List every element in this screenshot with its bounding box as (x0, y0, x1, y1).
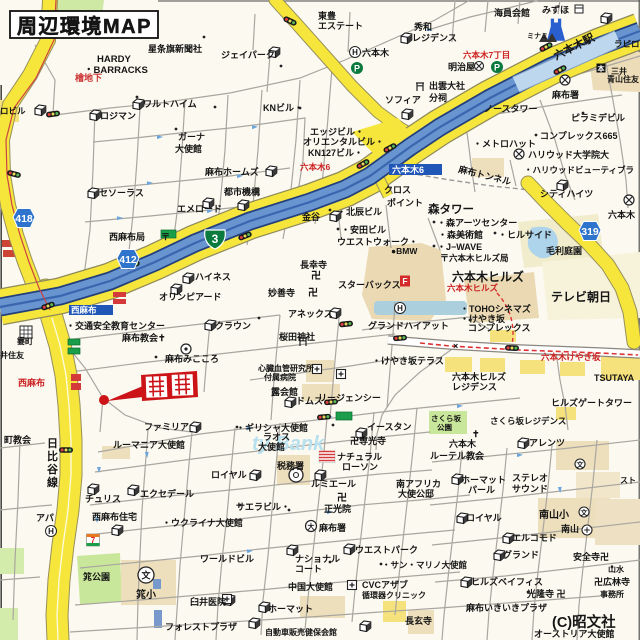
svg-text:麻布みこころ: 麻布みこころ (164, 353, 219, 364)
svg-text:ポイント: ポイント (387, 197, 423, 208)
svg-text:ジェイパーク: ジェイパーク (221, 49, 275, 60)
svg-text:・交通安全教育センター: ・交通安全教育センター (66, 320, 165, 331)
svg-text:ステレオ: ステレオ (512, 473, 548, 483)
svg-text:ピラミデビル: ピラミデビル (571, 112, 625, 123)
svg-text:循環器クリニック: 循環器クリニック (361, 590, 426, 600)
svg-text:KN127ビル・: KN127ビル・ (308, 147, 363, 158)
svg-text:ミナミ: ミナミ (527, 32, 548, 40)
svg-text:西麻布: 西麻布 (71, 305, 97, 315)
svg-text:税務署: 税務署 (277, 460, 304, 471)
svg-text:コート: コート (295, 564, 322, 574)
svg-text:チュリス: チュリス (85, 494, 121, 504)
svg-text:ホーマット: ホーマット (268, 604, 313, 614)
svg-text:セソーラス: セソーラス (99, 188, 144, 198)
svg-text:文: 文 (581, 508, 589, 517)
svg-text:西麻布: 西麻布 (18, 377, 45, 388)
svg-text:✝: ✝ (472, 429, 480, 439)
svg-text:卍: 卍 (311, 270, 321, 282)
svg-text:シティハイツ: シティハイツ (540, 189, 593, 199)
svg-text:〒: 〒 (440, 253, 449, 263)
svg-text:南山小: 南山小 (539, 508, 569, 521)
svg-text:H: H (397, 304, 403, 313)
svg-text:エメロード: エメロード (177, 204, 222, 214)
svg-text:卍: 卍 (308, 287, 318, 299)
svg-text:ヒルズベイフィス: ヒルズベイフィス (471, 576, 543, 587)
svg-text:六本木ヒルズ: 六本木ヒルズ (447, 283, 499, 293)
svg-text:ハイネス: ハイネス (195, 272, 231, 282)
svg-text:ルーテル教会: ルーテル教会 (430, 450, 485, 461)
svg-text:オリンピアード: オリンピアード (159, 291, 221, 302)
svg-text:グランドハイアット: グランドハイアット (368, 320, 449, 331)
svg-text:みずほ: みずほ (542, 4, 569, 15)
svg-text:7: 7 (91, 536, 96, 545)
svg-text:明治屋: 明治屋 (448, 61, 475, 72)
svg-text:筄小: 筄小 (136, 588, 156, 601)
svg-text:イースタン: イースタン (367, 421, 412, 432)
svg-text:●BMW: ●BMW (391, 246, 418, 256)
svg-text:エクセデール: エクセデール (140, 488, 194, 499)
svg-text:線: 線 (47, 475, 58, 489)
svg-text:・サン・マリノ大使館: ・サン・マリノ大使館 (382, 560, 468, 570)
svg-text:文: 文 (577, 460, 585, 469)
svg-text:グランド: グランド (503, 549, 539, 560)
svg-text:六本木: 六本木 (449, 438, 477, 449)
svg-text:・けやき坂テラス: ・けやき坂テラス (372, 355, 444, 366)
svg-text:412: 412 (119, 254, 137, 266)
svg-text:六本木: 六本木 (608, 209, 636, 220)
svg-text:安全寺卍: 安全寺卍 (573, 551, 609, 562)
svg-text:ノースタワー: ノースタワー (484, 103, 538, 114)
svg-text:西麻布局: 西麻布局 (109, 231, 145, 242)
svg-text:ソフィア: ソフィア (385, 95, 421, 105)
svg-text:H: H (352, 48, 358, 57)
svg-text:六本木ヒルズ: 六本木ヒルズ (452, 371, 506, 382)
svg-text:六本木: 六本木 (362, 47, 390, 58)
svg-text:大使館: 大使館 (258, 441, 285, 452)
svg-text:麻布署: 麻布署 (551, 89, 579, 100)
svg-text:付属病院: 付属病院 (264, 372, 296, 382)
svg-text:卍: 卍 (337, 492, 347, 504)
svg-text:・TOHOシネマズ: ・TOHOシネマズ (460, 303, 531, 314)
svg-text:谷: 谷 (47, 462, 59, 476)
svg-text:日: 日 (47, 437, 58, 450)
svg-text:・ヒルサイド: ・ヒルサイド (498, 230, 552, 240)
svg-text:ラピロ: ラピロ (614, 39, 640, 49)
svg-text:町教会: 町教会 (4, 434, 32, 445)
svg-text:中国大使館: 中国大使館 (288, 581, 333, 592)
svg-text:海員会館: 海員会館 (494, 7, 530, 18)
svg-text:南アフリカ: 南アフリカ (396, 478, 441, 489)
svg-text:〒: 〒 (161, 232, 170, 242)
svg-text:リージェンシー: リージェンシー (318, 393, 381, 403)
svg-text:418: 418 (15, 213, 33, 225)
svg-text:HARDY: HARDY (97, 54, 131, 65)
svg-text:ドムス: ドムス (296, 396, 323, 406)
svg-text:・北辰ビル: ・北辰ビル (337, 206, 382, 217)
svg-text:テレビ朝日: テレビ朝日 (551, 289, 611, 304)
svg-text:×: × (453, 341, 458, 351)
svg-text:スト: スト (620, 476, 636, 485)
svg-text:エルコモド: エルコモド (512, 533, 557, 543)
svg-text:秀和: 秀和 (413, 21, 432, 32)
svg-text:フォレストプラザ: フォレストプラザ (165, 621, 237, 632)
svg-text:周辺環境MAP: 周辺環境MAP (17, 14, 152, 38)
svg-text:さくら坂: さくら坂 (431, 413, 461, 423)
svg-text:六本木ヒルズ: 六本木ヒルズ (452, 269, 524, 284)
svg-text:六本木6: 六本木6 (392, 164, 424, 175)
svg-text:・メトロハット: ・メトロハット (473, 139, 536, 149)
svg-text:金谷: 金谷 (301, 211, 321, 222)
svg-text:麻布署: 麻布署 (318, 522, 346, 533)
svg-text:麻布教会✝: 麻布教会✝ (121, 332, 166, 343)
svg-text:六本木ヒルズ局: 六本木ヒルズ局 (449, 253, 509, 263)
svg-text:長玄寺: 長玄寺 (405, 615, 432, 626)
svg-text:サウンド: サウンド (512, 484, 548, 494)
svg-text:ウエストパーク: ウエストパーク (355, 544, 418, 555)
svg-text:ルミエール: ルミエール (311, 479, 356, 489)
svg-text:アパ: アパ (36, 512, 54, 523)
svg-text:ロイヤル: ロイヤル (211, 470, 247, 480)
svg-text:パール: パール (468, 484, 495, 495)
svg-text:エッジビル・: エッジビル・ (310, 126, 364, 137)
svg-text:・安田ビル: ・安田ビル (341, 224, 386, 235)
svg-text:麻布いきいきプラザ: 麻布いきいきプラザ (465, 602, 547, 613)
svg-text:アレンツ: アレンツ (529, 438, 565, 448)
svg-text:クラウン: クラウン (215, 321, 251, 331)
svg-text:KNビル・: KNビル・ (263, 102, 303, 113)
svg-text:ヒルズゲートタワー: ヒルズゲートタワー (551, 397, 632, 408)
svg-text:毛利庭園: 毛利庭園 (546, 245, 582, 256)
svg-text:F: F (402, 276, 407, 286)
svg-text:P: P (354, 63, 360, 73)
svg-text:・森アーツセンター: ・森アーツセンター (437, 217, 517, 228)
svg-text:露会館: 露会館 (271, 386, 298, 397)
svg-text:分祠: 分祠 (429, 92, 447, 103)
svg-text:ガーナ: ガーナ (178, 131, 205, 142)
svg-text:ローソン: ローソン (342, 462, 378, 472)
svg-text:さくら坂レジデンス: さくら坂レジデンス (490, 416, 566, 426)
svg-text:筄公園: 筄公園 (83, 571, 110, 582)
svg-text:桜田神社: 桜田神社 (279, 331, 315, 342)
svg-text:CVCアザブ: CVCアザブ (362, 579, 408, 590)
svg-text:東豊: 東豊 (318, 10, 336, 21)
svg-text:ナチュラル: ナチュラル (337, 452, 382, 462)
svg-text:ワルトハイム: ワルトハイム (143, 99, 197, 109)
svg-text:ファミリア: ファミリア (144, 422, 189, 432)
svg-text:都市機構: 都市機構 (223, 186, 260, 197)
svg-text:ホーマット: ホーマット (461, 475, 506, 485)
svg-text:卍専光寺: 卍専光寺 (350, 435, 386, 446)
svg-text:六本木けやき坂: 六本木けやき坂 (541, 352, 601, 362)
svg-text:森タワー: 森タワー (428, 202, 474, 216)
svg-text:オリエンタルビル・: オリエンタルビル・ (303, 136, 384, 147)
svg-text:事務所: 事務所 (600, 589, 624, 599)
svg-text:南山: 南山 (561, 523, 579, 534)
svg-text:大使館: 大使館 (175, 143, 202, 154)
svg-text:自動車販売健保会館: 自動車販売健保会館 (265, 627, 337, 637)
svg-text:光隆寺 卍: 光隆寺 卍 (526, 588, 566, 599)
svg-text:心臓血管研究所: 心臓血管研究所 (258, 363, 314, 373)
svg-text:出雲大社: 出雲大社 (429, 80, 465, 91)
svg-text:319: 319 (581, 226, 599, 238)
svg-text:星条旗新聞社: 星条旗新聞社 (148, 43, 202, 54)
svg-text:H: H (48, 527, 54, 536)
svg-text:・J−WAVE: ・J−WAVE (437, 242, 482, 252)
svg-text:ワールドビル: ワールドビル (200, 553, 254, 564)
svg-text:ロジマン: ロジマン (100, 111, 136, 121)
svg-text:青山住友: 青山住友 (607, 74, 639, 84)
svg-text:3: 3 (212, 232, 219, 246)
svg-text:卍広林寺: 卍広林寺 (594, 576, 630, 587)
svg-text:臼井医院: 臼井医院 (190, 596, 226, 607)
svg-text:本: 本 (597, 64, 605, 73)
svg-text:レジデンス: レジデンス (452, 381, 497, 392)
svg-text:西麻布住宅: 西麻布住宅 (92, 511, 137, 522)
svg-text:TSUTAYA: TSUTAYA (594, 373, 635, 383)
svg-text:六本木7丁目: 六本木7丁目 (463, 50, 510, 60)
svg-text:公園: 公園 (437, 423, 452, 432)
svg-text:長幸寺: 長幸寺 (300, 259, 327, 270)
svg-text:ルーマニア大使館: ルーマニア大使館 (113, 439, 185, 450)
svg-text:妙善寺: 妙善寺 (268, 287, 295, 298)
svg-text:オーストリア大使館: オーストリア大使館 (534, 628, 615, 639)
svg-text:ロビル: ロビル (0, 106, 26, 116)
svg-text:ナショナル: ナショナル (295, 554, 340, 564)
svg-text:スターバックス: スターバックス (338, 279, 401, 290)
svg-text:井住友: 井住友 (0, 350, 24, 360)
svg-text:ロイヤル: ロイヤル (466, 513, 502, 523)
svg-text:P: P (494, 62, 500, 72)
svg-text:コンプレックス665: コンプレックス665 (540, 130, 617, 141)
svg-text:大使公邸: 大使公邸 (398, 488, 434, 499)
svg-text:サエラビル・: サエラビル・ (236, 501, 290, 512)
svg-text:アネックス: アネックス (288, 309, 333, 319)
svg-text:・ハリウッドビューティブラ: ・ハリウッドビューティブラ (524, 165, 634, 175)
svg-text:麻布ホームズ: 麻布ホームズ (204, 166, 259, 177)
svg-text:山水: 山水 (608, 564, 625, 574)
svg-text:霎町: 霎町 (17, 336, 33, 346)
svg-text:エステート: エステート (318, 21, 363, 31)
svg-text:檜地下: 檜地下 (75, 72, 102, 83)
svg-text:クロス: クロス (384, 185, 411, 195)
svg-text:・ウクライナ大使館: ・ウクライナ大使館 (162, 517, 243, 528)
svg-text:ラオス: ラオス (263, 432, 290, 442)
svg-text:ハリウッド大学院大: ハリウッド大学院大 (528, 149, 609, 160)
svg-text:大: 大 (308, 522, 315, 531)
svg-text:・森美術館: ・森美術館 (438, 229, 483, 240)
svg-text:コンプレックス: コンプレックス (468, 322, 530, 333)
svg-text:レジデンス: レジデンス (412, 32, 457, 43)
svg-text:正光院: 正光院 (324, 503, 351, 514)
svg-text:比: 比 (47, 449, 58, 463)
svg-text:文: 文 (140, 570, 151, 581)
svg-text:六本木6: 六本木6 (300, 162, 331, 172)
